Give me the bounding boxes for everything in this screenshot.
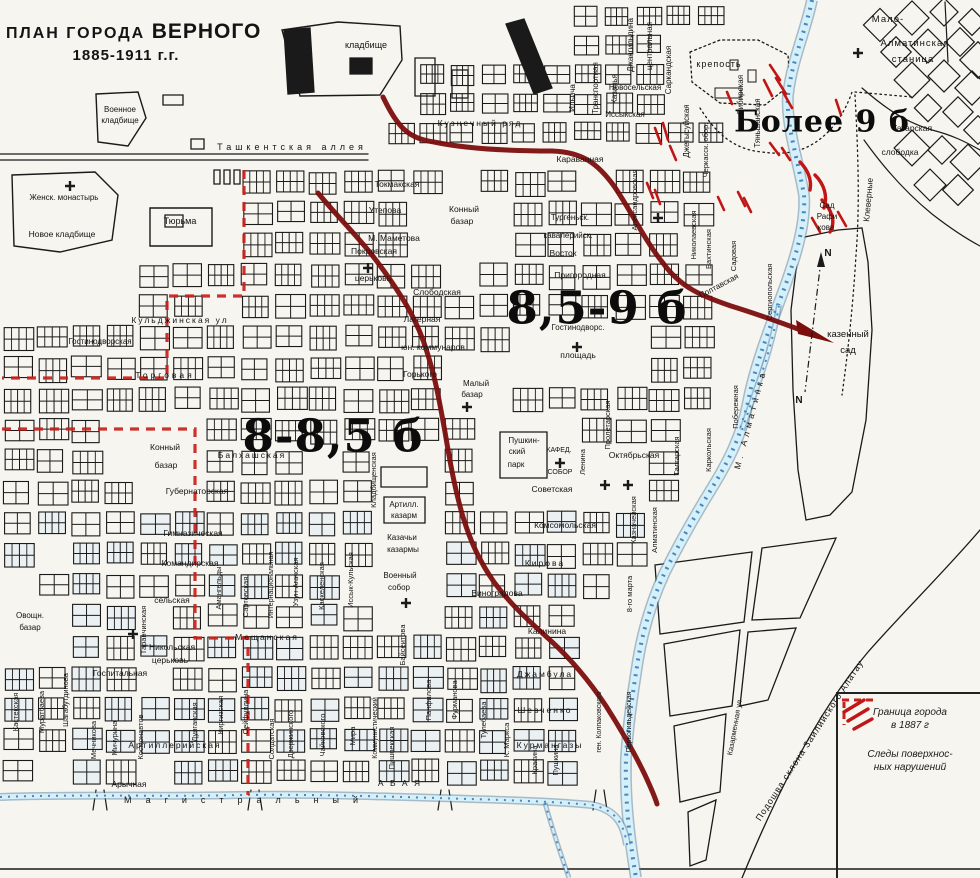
map-label: Панфилова bbox=[424, 679, 433, 721]
map-label: Дунганская bbox=[190, 702, 199, 741]
map-label: Ильича bbox=[568, 84, 577, 112]
map-label: Женск. монастырь bbox=[30, 193, 99, 202]
map-label: Гостинодворская bbox=[68, 337, 131, 346]
map-label: Пушкина bbox=[551, 744, 560, 776]
map-label: казарм bbox=[391, 511, 417, 520]
map-label: Тулебаева bbox=[479, 701, 488, 739]
legend-text-disturbances: Следы поверхнос- ных нарушений bbox=[842, 748, 978, 774]
map-label: ский bbox=[509, 447, 525, 456]
map-label: Восток bbox=[550, 248, 577, 258]
map-label: юн. коммунаров bbox=[401, 342, 465, 352]
map-label: станица bbox=[892, 54, 935, 65]
map-title-years: 1885-1911 г.г. bbox=[6, 47, 246, 64]
map-label: Байсеитова bbox=[398, 624, 407, 666]
map-label: базар bbox=[155, 460, 178, 470]
map-label: Малый bbox=[463, 379, 489, 388]
map-label: Ташкентская аллея bbox=[217, 142, 367, 152]
map-label: Лагерная bbox=[404, 314, 441, 324]
map-label: Мало- bbox=[872, 14, 904, 25]
map-label: Тюрьма bbox=[164, 216, 197, 226]
map-label: Побережная bbox=[731, 385, 740, 429]
map-label: К. Маркса bbox=[502, 722, 511, 757]
map-label: Коммунистический bbox=[371, 697, 379, 759]
map-label: N bbox=[824, 248, 831, 259]
map-label: Красина bbox=[530, 745, 539, 775]
map-label: Саркандская bbox=[664, 46, 673, 94]
surface-hatch-icon bbox=[838, 694, 880, 734]
map-label: Конный bbox=[449, 204, 479, 214]
map-label: Рафи bbox=[817, 212, 838, 221]
map-label: Овощн. bbox=[16, 611, 44, 620]
map-label: М. Маметова bbox=[368, 233, 420, 243]
map-label: ген. Колпаковского bbox=[596, 691, 603, 752]
legend-line: Следы поверхнос- bbox=[867, 749, 952, 760]
map-label: крепость bbox=[696, 59, 741, 69]
map-label: площадь bbox=[560, 350, 596, 360]
map-label: 8-го марта bbox=[625, 575, 634, 612]
map-label: Слободская bbox=[413, 287, 461, 297]
church-cross-icon bbox=[555, 458, 565, 468]
map-label: Интернациональная bbox=[268, 552, 275, 619]
map-label: Иссык-Кульская bbox=[346, 552, 355, 608]
zone-label-more-9: Более 9 б bbox=[734, 105, 910, 140]
map-label: Амангельды bbox=[214, 566, 223, 609]
map-label: Кузнечный ряд bbox=[438, 118, 523, 128]
map-label: КАФЕД. bbox=[546, 447, 571, 454]
map-label: Октябрьская bbox=[609, 450, 660, 460]
map-label: слободка bbox=[881, 147, 918, 157]
church-cross-icon bbox=[623, 480, 633, 490]
map-label: Покровская bbox=[351, 246, 397, 256]
map-label: церьковь bbox=[355, 273, 392, 283]
church-cross-icon bbox=[401, 598, 411, 608]
map-label: кова bbox=[818, 223, 835, 232]
map-label: Казарменная ул bbox=[725, 699, 744, 756]
map-label: Дзержинского bbox=[286, 710, 295, 758]
map-label: СОБОР bbox=[548, 469, 573, 476]
map-label: Алматинская bbox=[881, 38, 950, 49]
map-label: Кастекская bbox=[11, 693, 20, 732]
map-label: А Б А Я bbox=[378, 778, 422, 788]
map-label: Сергиопольская bbox=[765, 264, 774, 321]
church-cross-icon bbox=[653, 213, 663, 223]
map-label: центральная bbox=[645, 22, 654, 70]
map-label: Садовая bbox=[729, 241, 738, 271]
map-label: Мира bbox=[348, 726, 357, 746]
map-label: Виноградова bbox=[471, 588, 523, 598]
church-cross-icon bbox=[853, 48, 863, 58]
map-label: Шевченко bbox=[517, 705, 572, 715]
map-label: Талгарская bbox=[672, 436, 681, 475]
map-label: Фурманова bbox=[450, 680, 459, 720]
map-label: Джамбула bbox=[517, 669, 573, 679]
map-label: Киргизская bbox=[216, 696, 225, 734]
map-label: Муратбаева bbox=[37, 690, 46, 733]
map-label: Космонавтов bbox=[136, 714, 145, 759]
map-label: Горького bbox=[403, 369, 437, 379]
map-label: Полтавская bbox=[698, 272, 740, 300]
map-label: Каскеленская bbox=[317, 562, 326, 610]
map-label: Ленина bbox=[578, 448, 587, 475]
map-label: Каркольская bbox=[704, 428, 713, 472]
map-label: кавалерийск. bbox=[544, 231, 593, 240]
map-label: Александровская bbox=[630, 169, 639, 230]
map-label: Мечникова bbox=[89, 720, 98, 759]
map-label: Госпитальная bbox=[93, 668, 148, 678]
title-block: ПЛАН ГОРОДА ВЕРНОГО 1885-1911 г.г. bbox=[6, 20, 246, 64]
map-title-city: ВЕРНОГО bbox=[152, 20, 262, 43]
map-label: Джангильдина bbox=[626, 18, 635, 72]
map-label: Курмангазы bbox=[517, 740, 584, 750]
map-label: Солдатская bbox=[267, 719, 276, 760]
map-label: кладбище bbox=[101, 116, 139, 125]
map-label: Военный bbox=[383, 571, 416, 580]
map-label: Первогильдейская bbox=[625, 691, 633, 752]
map-label: Новое кладбище bbox=[29, 229, 96, 239]
zone-label-8-5-9: 8,5-9 б bbox=[507, 282, 688, 335]
map-label: Мещанская bbox=[235, 632, 299, 642]
map-label: Пригородная bbox=[554, 270, 606, 280]
church-cross-icon bbox=[363, 263, 373, 273]
map-label: Кульджинская ул bbox=[131, 315, 228, 325]
legend-line: ных нарушений bbox=[874, 762, 946, 773]
zone-label-8-8-5: 8-8,5 б bbox=[243, 410, 424, 463]
map-label: Узун-Агачская bbox=[291, 557, 300, 606]
legend-line: в 1887 г bbox=[891, 720, 929, 731]
church-cross-icon bbox=[600, 480, 610, 490]
map-label: Сад bbox=[820, 201, 835, 210]
church-cross-icon bbox=[65, 181, 75, 191]
map-label: Караванная bbox=[557, 154, 604, 164]
map-label: парк bbox=[508, 460, 525, 469]
map-label: Комсомольская bbox=[534, 520, 596, 530]
map-label: Гимназическая bbox=[163, 528, 223, 538]
map-label: Таранчинская bbox=[139, 606, 148, 655]
map-label: сад bbox=[840, 345, 856, 356]
map-label: Пишпекская bbox=[387, 727, 396, 770]
map-label: казармы bbox=[387, 545, 419, 554]
map-label: Клеверные bbox=[861, 177, 875, 222]
legend-line: Граница города bbox=[873, 707, 947, 718]
map-label: Казначейская bbox=[629, 496, 638, 544]
map-label: Транспортная bbox=[591, 62, 600, 114]
map-label: Торговая bbox=[135, 370, 194, 380]
map-label: Бахтинская bbox=[704, 229, 713, 269]
map-label: Никольская bbox=[149, 642, 196, 652]
map-label: Иссыкская bbox=[605, 110, 645, 119]
legend: Граница города в 1887 г Следы поверхнос-… bbox=[836, 692, 980, 878]
map-label: казенный bbox=[827, 329, 869, 340]
map-label: Командирская bbox=[162, 558, 219, 568]
map-label: Чайковского bbox=[318, 714, 327, 757]
map-label: Казачья bbox=[610, 74, 619, 104]
map-label: Тургеньск. bbox=[551, 213, 589, 222]
map-label: Калинина bbox=[528, 626, 567, 636]
map-label: кладбище bbox=[345, 40, 387, 50]
map-label: Сартовская bbox=[241, 577, 250, 618]
legend-item-disturbances: Следы поверхнос- ных нарушений bbox=[842, 748, 978, 774]
map-label: Джетысуйская bbox=[682, 104, 691, 157]
map-label: базар bbox=[19, 623, 41, 632]
map-label: сельская bbox=[154, 595, 190, 605]
map-label: Советская bbox=[531, 484, 572, 494]
map-label: Николаевская bbox=[689, 210, 698, 259]
church-cross-icon bbox=[462, 402, 472, 412]
map-canvas: кладбищеВоенноекладбищеТашкентская аллея… bbox=[0, 0, 980, 878]
map-label: Черкасск. обор. bbox=[701, 123, 710, 178]
map-label: Губернаторская bbox=[166, 486, 229, 496]
map-label: Токмакская bbox=[375, 179, 420, 189]
map-label: церьковь bbox=[152, 655, 189, 665]
map-label: Алматинская bbox=[650, 507, 659, 553]
map-label: Артилл. bbox=[389, 500, 418, 509]
north-arrow bbox=[805, 252, 825, 392]
map-label: собор bbox=[388, 583, 411, 592]
surface-disturbance-marks bbox=[647, 65, 846, 232]
map-label: Конный bbox=[150, 442, 180, 452]
map-label: Кирова bbox=[525, 558, 565, 568]
church-cross-icon bbox=[128, 629, 138, 639]
map-title-prefix: ПЛАН ГОРОДА bbox=[6, 25, 145, 42]
map-label: Арычная bbox=[112, 779, 147, 789]
map-label: Шагабутдинова bbox=[61, 672, 70, 727]
map-label: Магистральный bbox=[124, 795, 372, 805]
map-label: Мичурина bbox=[110, 720, 119, 756]
map-title: ПЛАН ГОРОДА ВЕРНОГО bbox=[6, 20, 246, 44]
map-label: Пролетарская bbox=[603, 401, 612, 450]
map-label: Военное bbox=[104, 105, 137, 114]
map-label: Пушкин- bbox=[508, 436, 540, 445]
map-label: базар bbox=[461, 390, 483, 399]
map-label: Сейфуллина bbox=[241, 689, 250, 735]
map-label: базар bbox=[451, 216, 474, 226]
map-label: Утепова bbox=[369, 205, 402, 215]
map-label: Казачьи bbox=[387, 533, 417, 542]
map-label: N bbox=[795, 395, 802, 406]
